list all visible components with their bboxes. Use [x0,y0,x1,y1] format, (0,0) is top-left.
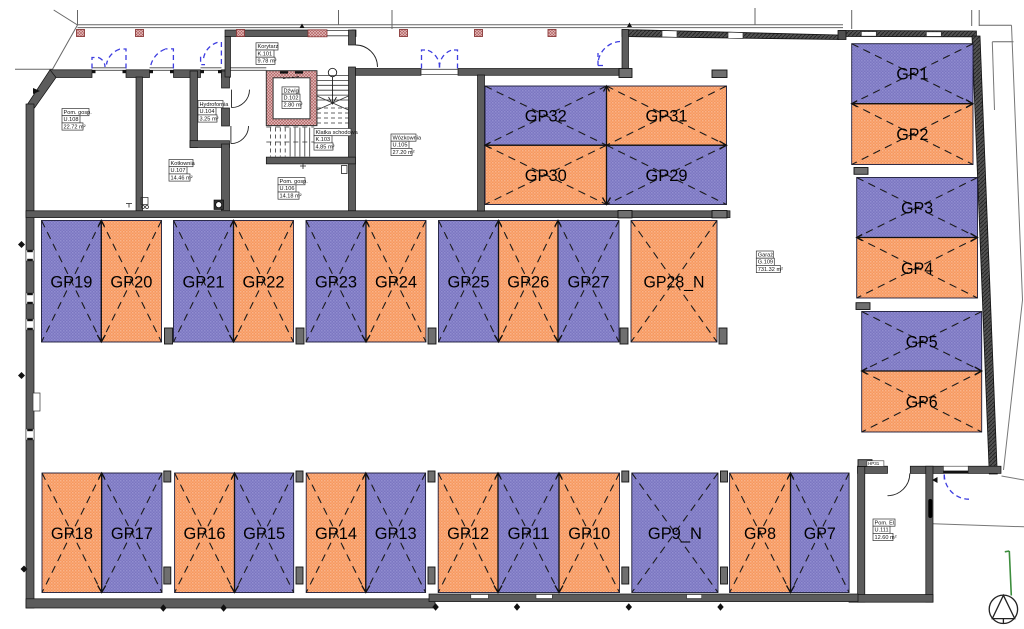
svg-text:GP13: GP13 [375,524,417,543]
svg-text:GP2: GP2 [896,125,928,144]
svg-text:U.104: U.104 [200,109,215,115]
svg-text:Garaż: Garaż [758,252,773,258]
svg-text:K.101: K.101 [258,51,273,57]
svg-text:D.102: D.102 [284,96,299,102]
svg-text:GP29: GP29 [646,166,688,185]
svg-text:GP17: GP17 [111,524,153,543]
svg-text:U.106: U.106 [280,186,295,192]
svg-text:GP28_N: GP28_N [644,272,705,291]
svg-text:GP6: GP6 [906,393,938,412]
svg-text:GP24: GP24 [375,272,417,291]
svg-text:GP14: GP14 [315,524,357,543]
svg-text:GP31: GP31 [646,107,688,126]
svg-text:Pom. gosp.: Pom. gosp. [64,110,93,116]
svg-text:GP32: GP32 [525,107,567,126]
svg-text:GP30: GP30 [525,166,567,185]
svg-text:U.111: U.111 [875,528,889,534]
svg-text:GP7: GP7 [804,524,836,543]
svg-text:K.103: K.103 [316,137,331,143]
svg-text:GP27: GP27 [568,272,610,291]
svg-text:9.78 m²: 9.78 m² [258,59,277,65]
svg-text:3.25 m²: 3.25 m² [200,116,219,122]
svg-text:GP3: GP3 [901,199,933,218]
svg-text:GP26: GP26 [507,272,549,291]
svg-text:GP4: GP4 [901,259,933,278]
svg-text:14.46 m²: 14.46 m² [171,175,193,181]
svg-text:GP22: GP22 [243,272,285,291]
svg-text:Wózkownia: Wózkownia [393,135,422,141]
svg-text:Pom. El.: Pom. El. [875,520,897,526]
svg-text:HP31: HP31 [868,461,880,466]
svg-text:22.72 m²: 22.72 m² [64,124,86,130]
svg-text:Kotłownia: Kotłownia [171,161,196,167]
svg-text:Pom. gosp.: Pom. gosp. [280,179,309,185]
svg-text:14.18 m²: 14.18 m² [280,193,302,199]
svg-text:GP10: GP10 [568,524,610,543]
svg-text:GP1: GP1 [896,65,928,84]
svg-text:GP12: GP12 [447,524,489,543]
svg-text:GP5: GP5 [906,332,938,351]
svg-text:Hydrofornia: Hydrofornia [200,102,230,108]
svg-text:GP9_N: GP9_N [648,524,702,543]
svg-text:GP15: GP15 [243,524,285,543]
svg-text:GP20: GP20 [110,272,152,291]
svg-text:Korytarz: Korytarz [258,44,279,50]
svg-text:GP19: GP19 [50,272,92,291]
svg-text:GP16: GP16 [184,524,226,543]
svg-text:GP25: GP25 [448,272,490,291]
svg-text:U.108: U.108 [64,117,79,123]
svg-text:27.20 m²: 27.20 m² [393,150,415,156]
svg-text:GP23: GP23 [315,272,357,291]
svg-text:GP8: GP8 [744,524,776,543]
svg-text:U.105: U.105 [393,143,408,149]
svg-text:4.85 m²: 4.85 m² [316,144,335,150]
svg-text:2.80 m²: 2.80 m² [284,103,303,109]
svg-text:GP11: GP11 [508,524,550,543]
svg-text:U.107: U.107 [171,168,186,174]
svg-text:Dźwig: Dźwig [284,88,299,94]
svg-text:GP18: GP18 [51,524,93,543]
svg-text:GP21: GP21 [183,272,225,291]
svg-text:12.60 m²: 12.60 m² [875,535,897,541]
svg-text:Klatka schodowa: Klatka schodowa [316,130,359,136]
svg-text:731.32 m²: 731.32 m² [758,267,783,273]
svg-text:G.109: G.109 [758,260,773,266]
